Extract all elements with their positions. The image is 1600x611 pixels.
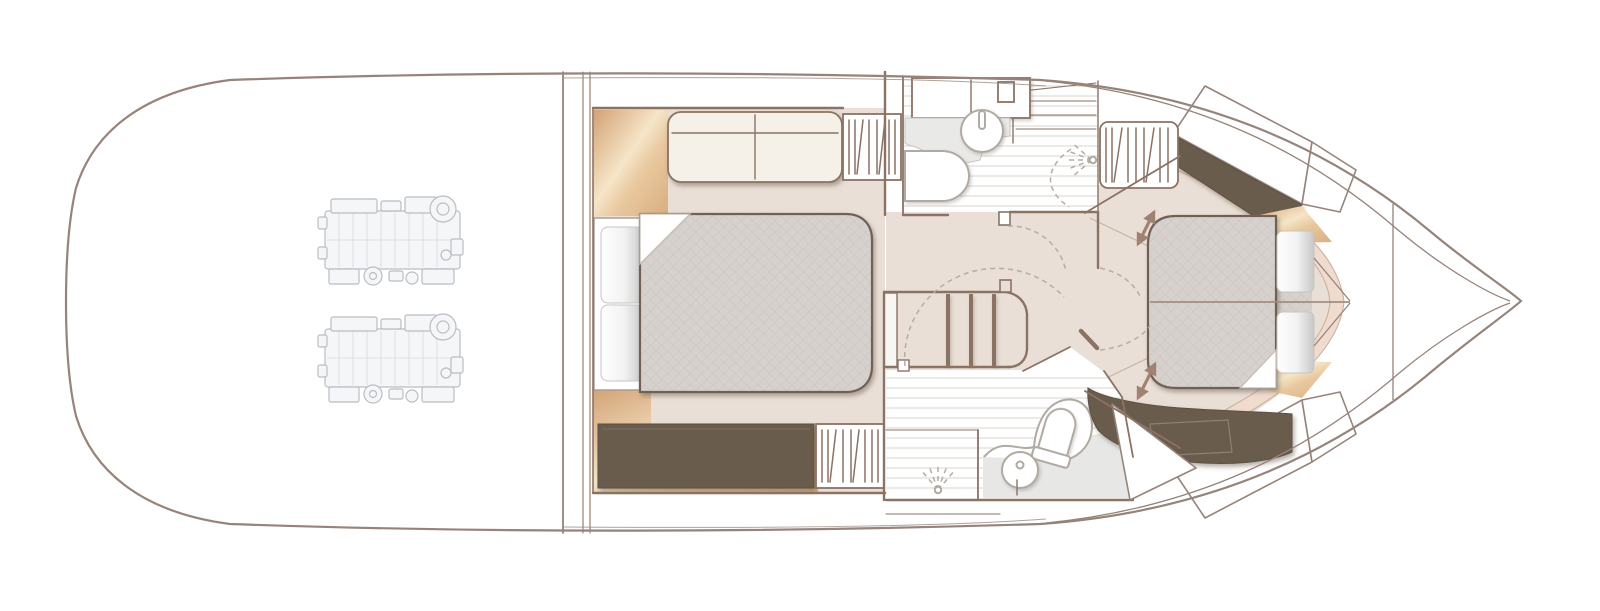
wardrobe-aft (843, 114, 901, 180)
basin-icon (1002, 452, 1038, 488)
engine-room (318, 196, 463, 403)
wood-floor-patch (594, 110, 668, 216)
mid-cabin-bed-icon (640, 214, 872, 392)
engine-icon (318, 314, 463, 403)
floorplan-drawing (0, 0, 1600, 611)
faucet-icon (979, 111, 985, 129)
yacht-lower-deck-floorplan (0, 0, 1600, 611)
sofa-icon (668, 112, 842, 182)
door-post (999, 212, 1010, 225)
dresser-unit (598, 424, 814, 488)
door-post (898, 360, 909, 371)
pillow-icon (601, 227, 644, 303)
pillow-icon (1277, 231, 1314, 292)
forward-wardrobe (1100, 122, 1178, 188)
toilet-icon (905, 151, 969, 201)
newel-post (1000, 280, 1011, 292)
ensuite-bathroom (886, 347, 1133, 514)
shelf-box (998, 82, 1014, 102)
day-head (903, 75, 1098, 212)
basin-drain (1017, 462, 1024, 469)
pillow-icon (601, 305, 644, 381)
stair-landing-step (884, 293, 897, 367)
pillow-icon (1277, 312, 1314, 373)
engine-icon (318, 196, 463, 285)
wardrobe-forward (816, 424, 884, 488)
